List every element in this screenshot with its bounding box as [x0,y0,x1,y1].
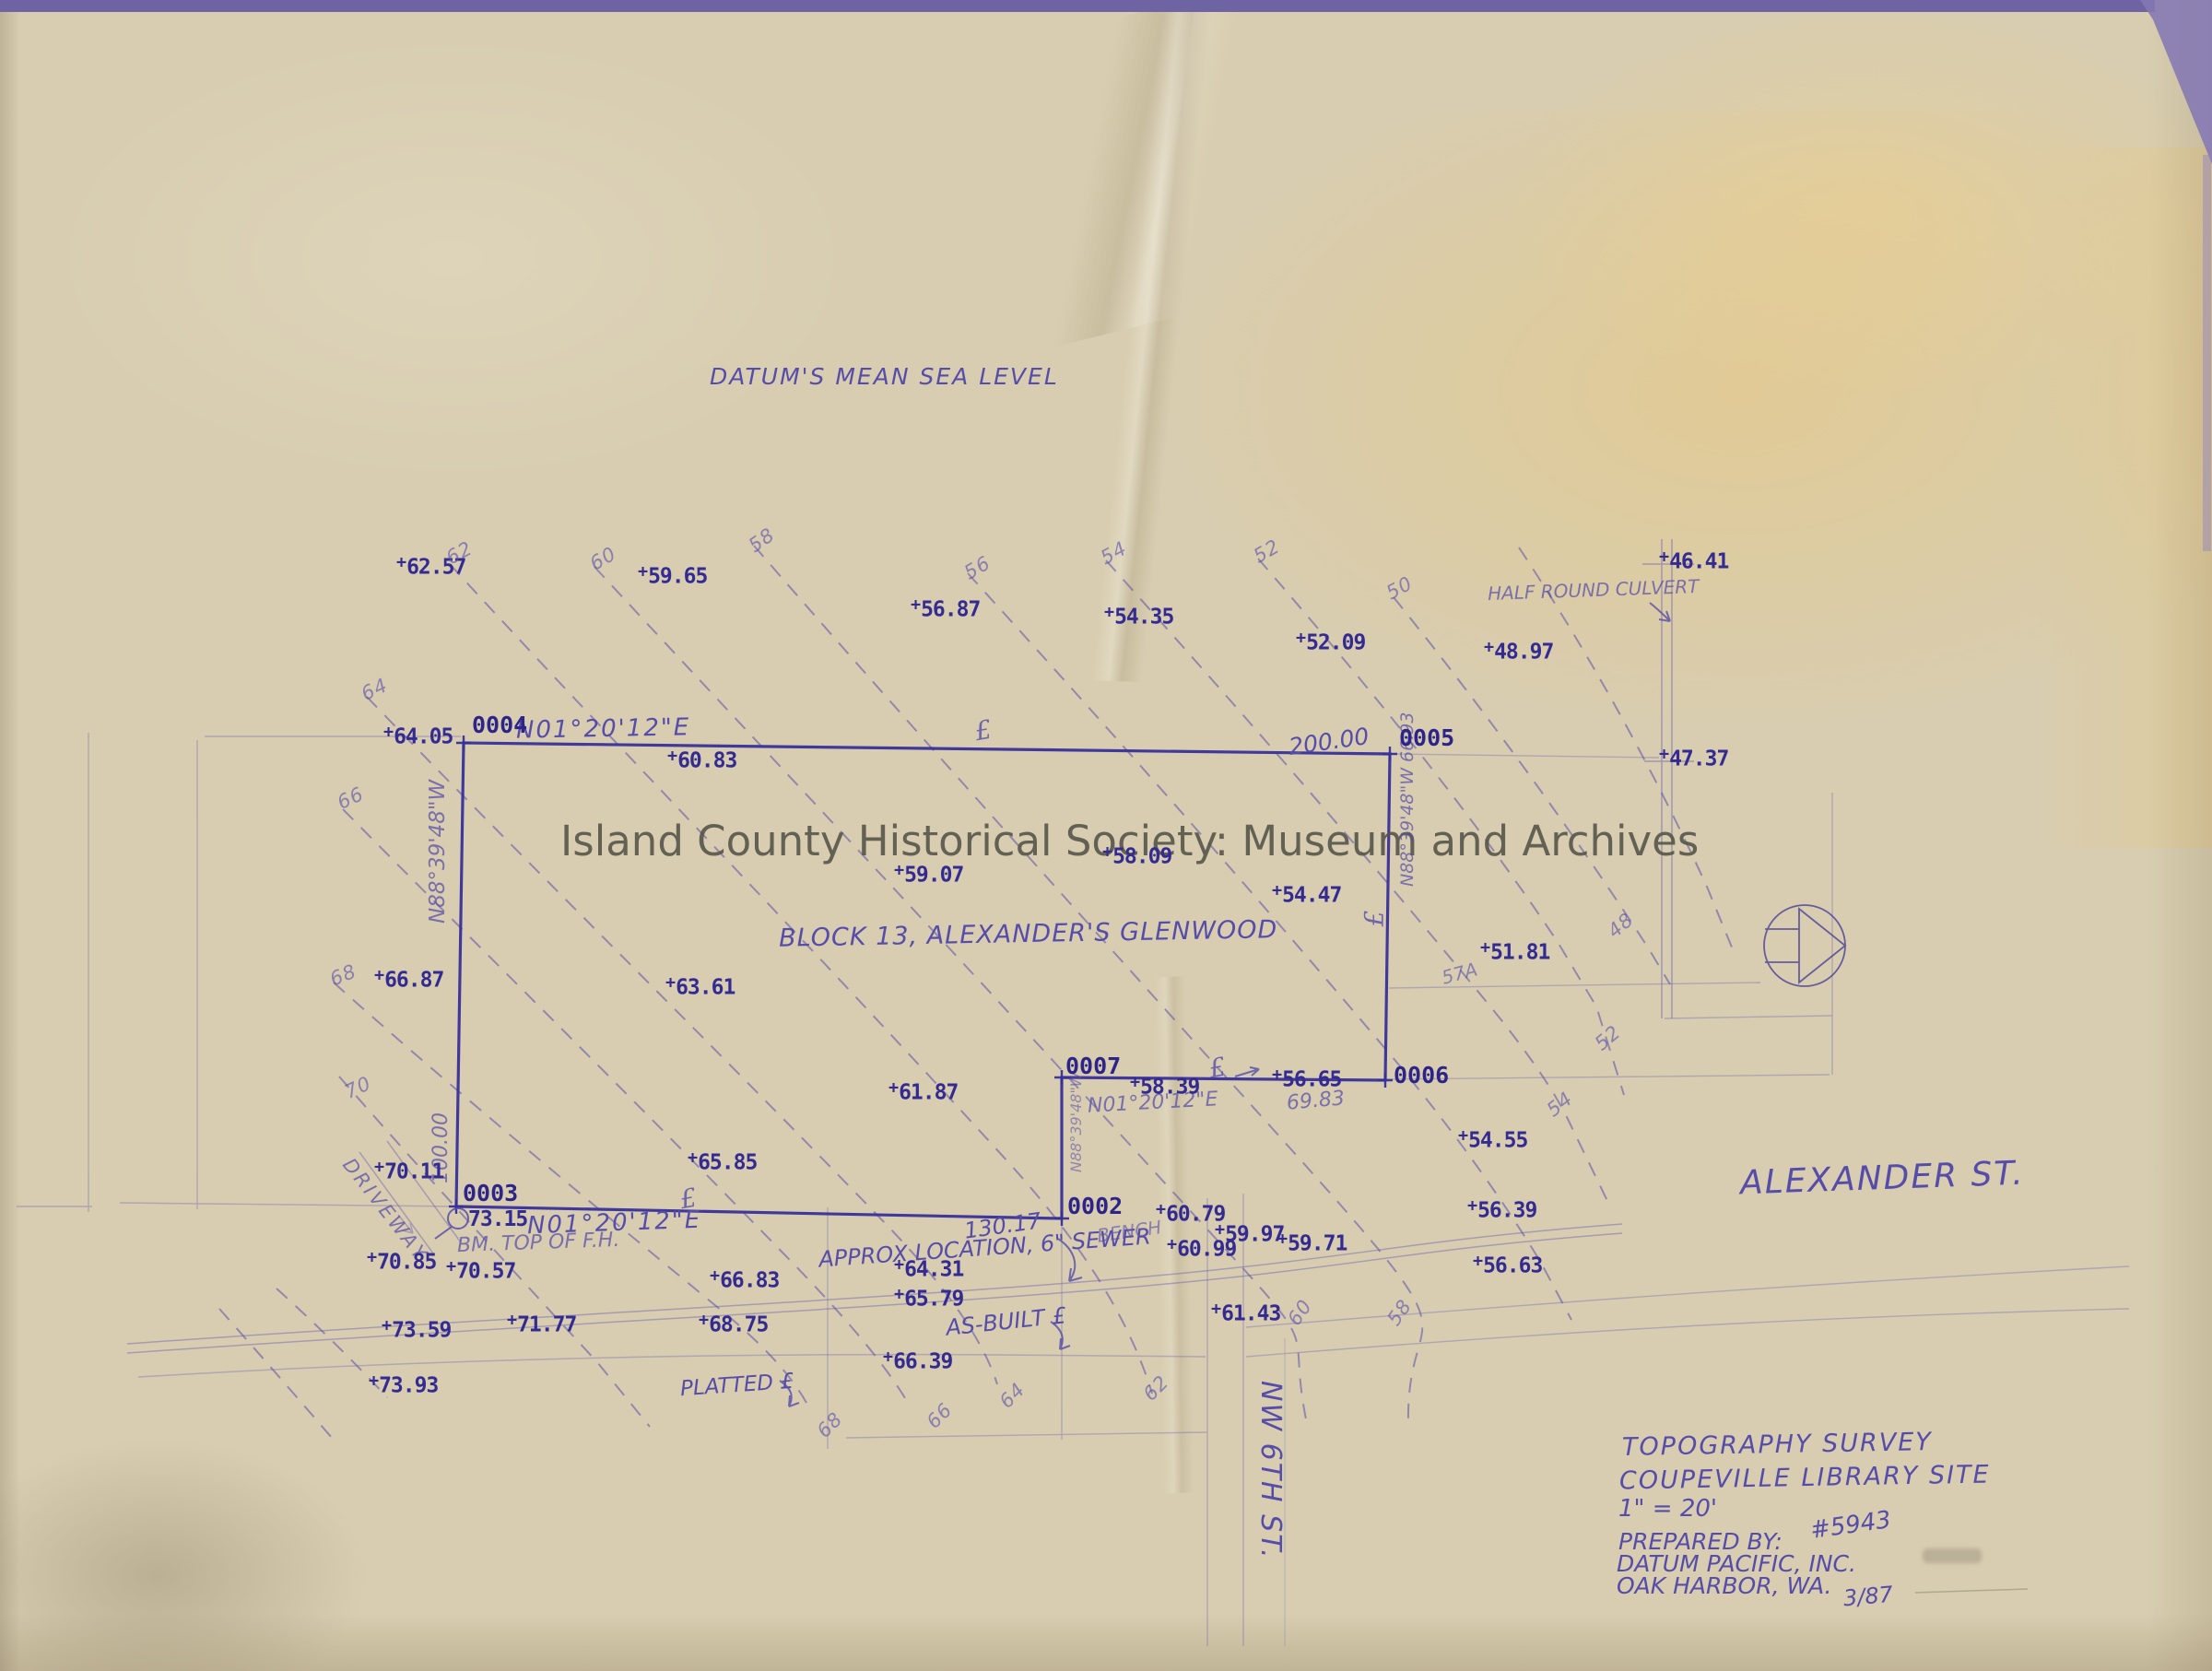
bearing-notch-side: N88°39'48"W [1067,1072,1085,1172]
datum-note: DATUM'S MEAN SEA LEVEL [710,363,1059,390]
spot-elevation: +56.87 [911,595,980,621]
centerline-symbol: £ [1051,1302,1067,1329]
spot-elevation: +68.75 [699,1311,768,1336]
spot-elevation: +65.85 [688,1148,757,1174]
spot-elevation: +48.97 [1484,638,1553,664]
culvert-lines [1642,539,1694,1018]
bearing-west-side: N88°39'48"W [426,780,450,924]
spot-elevation: +59.07 [894,861,963,887]
spot-elevation: +63.61 [665,973,735,999]
property-boundary [449,735,1397,1226]
spot-elevation: +56.63 [1473,1252,1542,1277]
pencil-line [1915,1589,2028,1593]
north-arrow-icon [1764,905,1845,986]
contour-lines [219,546,1735,1438]
corner-id: 0005 [1399,724,1454,751]
spot-elevation: +73.93 [369,1371,438,1397]
spot-elevation: +61.87 [888,1078,958,1104]
spot-elevation: +70.11 [374,1158,443,1183]
title-scale: 1" = 20' [1618,1495,1717,1523]
corner-id: 0007 [1065,1053,1121,1079]
spot-elevation: 73.15 [468,1207,527,1231]
title-city: OAK HARBOR, WA. [1617,1572,1831,1599]
spot-elevation: +59.97 [1215,1220,1284,1246]
centerline-symbol: £ [779,1370,794,1394]
corner-id: 0002 [1067,1193,1123,1219]
centerline-symbol: £ [1359,911,1389,927]
spot-elevation: +54.35 [1104,603,1173,629]
spot-elevation: +58.39 [1130,1073,1199,1099]
title-line1: TOPOGRAPHY SURVEY [1622,1428,1933,1462]
spot-elevation: +66.87 [374,966,443,992]
spot-elevation: +59.65 [638,562,707,588]
survey-sheet: Island County Historical Society: Museum… [0,0,2212,1671]
bearing-top: N01°20'12"E [516,713,691,744]
spot-elevation: +51.81 [1480,938,1549,964]
spot-elevation: +47.37 [1659,745,1728,771]
spot-elevation: +65.79 [894,1285,963,1311]
spot-elevation: +71.77 [507,1311,576,1336]
spot-elevation: +54.55 [1458,1126,1527,1152]
spot-elevation: +61.43 [1211,1300,1280,1325]
spot-elevation: +59.71 [1277,1230,1347,1255]
spot-elevation: +46.41 [1659,547,1728,573]
spot-elevation: +64.31 [894,1255,963,1281]
street-label-nw-6th: NW 6TH ST. [1254,1381,1287,1560]
spot-elevation: +54.47 [1272,881,1341,907]
corner-id: 0004 [472,712,527,738]
title-date: 3/87 [1842,1582,1894,1612]
spot-elevation: +52.09 [1296,629,1365,654]
spot-elevation: +70.57 [446,1257,515,1283]
spot-elevation: +73.59 [382,1316,451,1342]
spot-elevation: +66.39 [883,1347,952,1373]
spot-elevation: +56.39 [1467,1196,1536,1222]
corner-id: 0006 [1394,1062,1449,1089]
spot-elevation: +56.65 [1272,1065,1341,1091]
spot-elevation: +66.83 [710,1266,779,1292]
spot-elevation: +70.85 [367,1248,436,1274]
spot-elevation: +58.09 [1102,842,1171,868]
corner-id: 0003 [463,1180,518,1206]
spot-elevation: +60.83 [667,747,736,772]
spot-elevation: +64.05 [383,723,453,748]
